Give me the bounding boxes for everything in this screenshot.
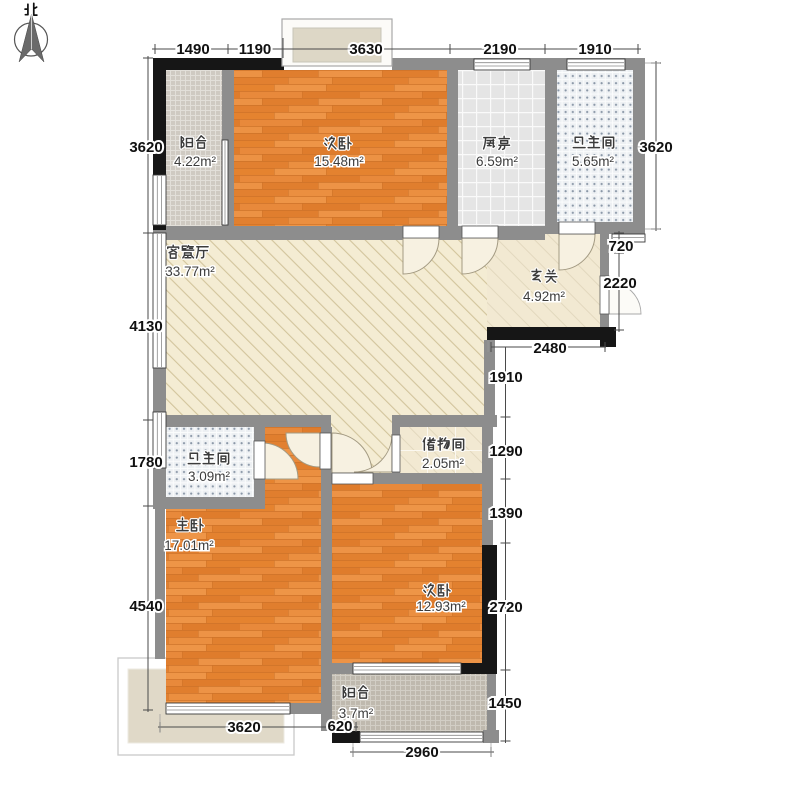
- svg-text:3.09m²: 3.09m²: [188, 469, 231, 484]
- svg-text:12.93m²: 12.93m²: [416, 599, 466, 614]
- svg-text:1780: 1780: [129, 454, 162, 471]
- svg-text:1450: 1450: [488, 695, 521, 712]
- svg-text:4130: 4130: [129, 318, 162, 335]
- svg-text:3.7m²: 3.7m²: [339, 706, 374, 721]
- svg-text:3630: 3630: [349, 41, 382, 58]
- svg-text:1190: 1190: [239, 41, 272, 58]
- svg-text:2190: 2190: [483, 41, 516, 58]
- svg-text:3620: 3620: [639, 139, 672, 156]
- svg-text:2720: 2720: [489, 599, 522, 616]
- svg-text:1490: 1490: [176, 41, 209, 58]
- svg-text:5.65m²: 5.65m²: [572, 154, 615, 169]
- svg-text:4.92m²: 4.92m²: [523, 289, 566, 304]
- svg-text:2480: 2480: [533, 340, 566, 357]
- svg-text:6.59m²: 6.59m²: [476, 154, 519, 169]
- svg-text:2960: 2960: [405, 744, 438, 761]
- svg-text:33.77m²: 33.77m²: [165, 264, 215, 279]
- svg-text:1390: 1390: [489, 505, 522, 522]
- svg-text:15.48m²: 15.48m²: [314, 154, 364, 169]
- svg-text:4540: 4540: [129, 598, 162, 615]
- svg-text:3620: 3620: [129, 139, 162, 156]
- svg-text:2.05m²: 2.05m²: [422, 456, 465, 471]
- svg-text:720: 720: [608, 238, 633, 255]
- svg-text:1910: 1910: [489, 369, 522, 386]
- svg-text:3620: 3620: [227, 719, 260, 736]
- svg-text:4.22m²: 4.22m²: [174, 154, 217, 169]
- svg-text:1910: 1910: [578, 41, 611, 58]
- svg-text:1290: 1290: [489, 443, 522, 460]
- svg-text:17.01m²: 17.01m²: [164, 538, 214, 553]
- svg-text:2220: 2220: [603, 275, 636, 292]
